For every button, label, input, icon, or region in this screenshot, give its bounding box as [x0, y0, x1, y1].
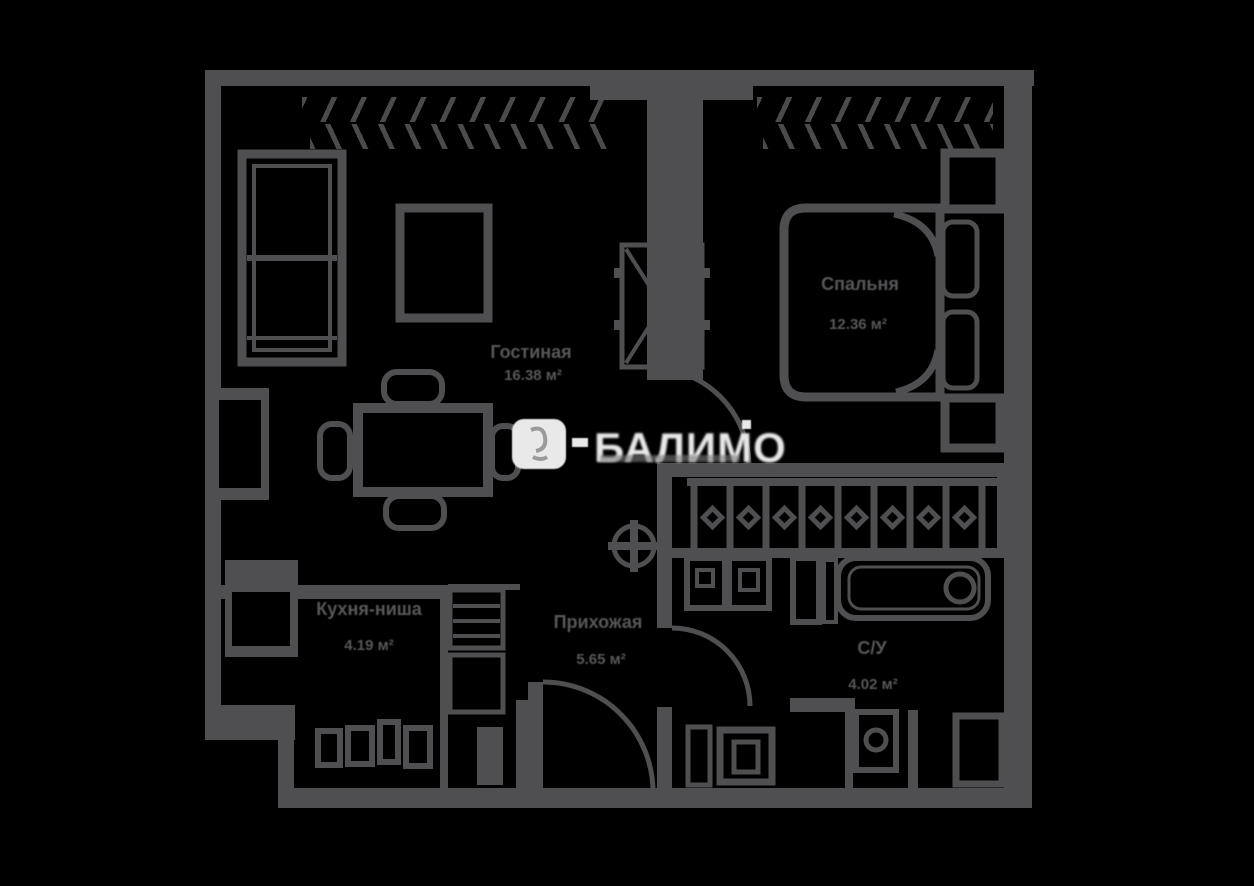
niche-opening	[219, 400, 261, 488]
hanger-diamond	[847, 508, 865, 526]
entrance-door-arc	[543, 682, 653, 792]
storage-block	[477, 727, 503, 785]
bedroom-area: 12.36 м²	[829, 316, 887, 333]
wall-bathroom-nook-right	[908, 710, 918, 790]
toilet-cistern-cabinet	[688, 727, 710, 785]
blanket-fold-bottom	[896, 350, 938, 392]
bathroom-door-arc	[672, 628, 750, 706]
washing-machine	[856, 712, 896, 770]
chair-top	[384, 372, 442, 404]
wardrobe-rail	[687, 478, 997, 550]
nightstand-top	[945, 153, 1000, 209]
bathtub-drain	[946, 574, 974, 602]
kitchen-area: 4.19 м²	[344, 637, 393, 654]
hall-cabinet	[450, 655, 503, 712]
tv-stand	[400, 208, 488, 318]
vent-shaft-notch-1	[614, 268, 624, 278]
shower-door-rail	[824, 560, 836, 622]
chair-bottom	[386, 496, 444, 528]
chair-left	[320, 424, 350, 478]
washing-machine-drum	[866, 730, 886, 750]
wall-center-column	[647, 86, 703, 380]
shaft-opening	[232, 592, 290, 646]
laundry-unit-2-inner	[740, 570, 758, 590]
wall-closet-right-pier	[997, 463, 1019, 558]
sink-cabinet	[956, 716, 1002, 784]
pillow-bottom	[943, 312, 977, 388]
living-room-area: 16.38 м²	[504, 367, 562, 384]
wall-top	[205, 70, 1034, 86]
storage-box-4	[406, 728, 430, 766]
wall-kitchen-right	[440, 585, 448, 790]
laundry-unit-2	[729, 558, 769, 608]
bathroom-fixtures	[687, 558, 1002, 785]
living-room-name: Гостиная	[490, 342, 571, 362]
hanger-diamond	[883, 508, 901, 526]
living-room	[242, 154, 518, 528]
ceiling-symbol	[608, 520, 660, 572]
watermark-text: БАЛИМО	[594, 424, 787, 471]
bathroom-area: 4.02 м²	[848, 676, 897, 693]
hanger-diamond	[955, 508, 973, 526]
vent-shaft-notch-4	[700, 320, 710, 330]
hallway-area: 5.65 м²	[576, 651, 625, 668]
watermark: БАЛИМО	[512, 419, 787, 471]
hanger-diamond	[775, 508, 793, 526]
wall-top-center-beam	[590, 86, 753, 100]
kitchen-name: Кухня-ниша	[316, 599, 423, 619]
watermark-smudge	[600, 455, 740, 462]
wall-bathroom-nook-left	[845, 710, 853, 790]
laundry-unit-1	[687, 558, 725, 608]
storage-box-2	[348, 728, 372, 764]
watermark-mark	[742, 420, 751, 429]
bed	[784, 208, 940, 397]
watermark-dash	[572, 438, 588, 447]
hanger-diamond	[919, 508, 937, 526]
nightstand-bottom	[945, 398, 1000, 448]
shower-door	[793, 558, 819, 622]
laundry-unit-1-inner	[697, 570, 713, 586]
floor-plan: Гостиная 16.38 м² Спальня 12.36 м² Кухня…	[0, 0, 1254, 886]
bedroom-name: Спальня	[821, 274, 899, 294]
wardrobe-rail-top	[687, 478, 997, 486]
floor-plan-canvas: Гостиная 16.38 м² Спальня 12.36 м² Кухня…	[0, 0, 1254, 886]
entrance-door-leaf	[528, 682, 543, 790]
storage-box-1	[318, 731, 340, 765]
storage-strip	[318, 722, 503, 785]
wall-bottom-left-drop	[278, 705, 294, 808]
hanger-diamond	[811, 508, 829, 526]
bedroom	[784, 153, 1000, 448]
watermark-logo-icon	[512, 419, 566, 469]
vent-shaft-notch-2	[614, 320, 624, 330]
toilet-bowl	[734, 742, 758, 772]
wall-bathroom-nook-top	[790, 698, 855, 712]
wall-right	[1004, 70, 1032, 808]
hanger-diamond	[739, 508, 757, 526]
left-wall-niche	[205, 388, 269, 500]
storage-box-3	[380, 722, 398, 762]
wall-hallway-left	[516, 700, 530, 790]
pillow-top	[943, 222, 977, 296]
dining-table	[358, 408, 488, 492]
bathroom-name: С/У	[857, 638, 887, 658]
wall-bathroom-left-lower	[657, 707, 672, 790]
vent-shaft-notch-3	[700, 268, 710, 278]
hanger-diamond	[703, 508, 721, 526]
blanket-fold-top	[894, 214, 938, 256]
left-lower-shaft	[225, 560, 298, 657]
hallway-name: Прихожая	[554, 612, 643, 632]
